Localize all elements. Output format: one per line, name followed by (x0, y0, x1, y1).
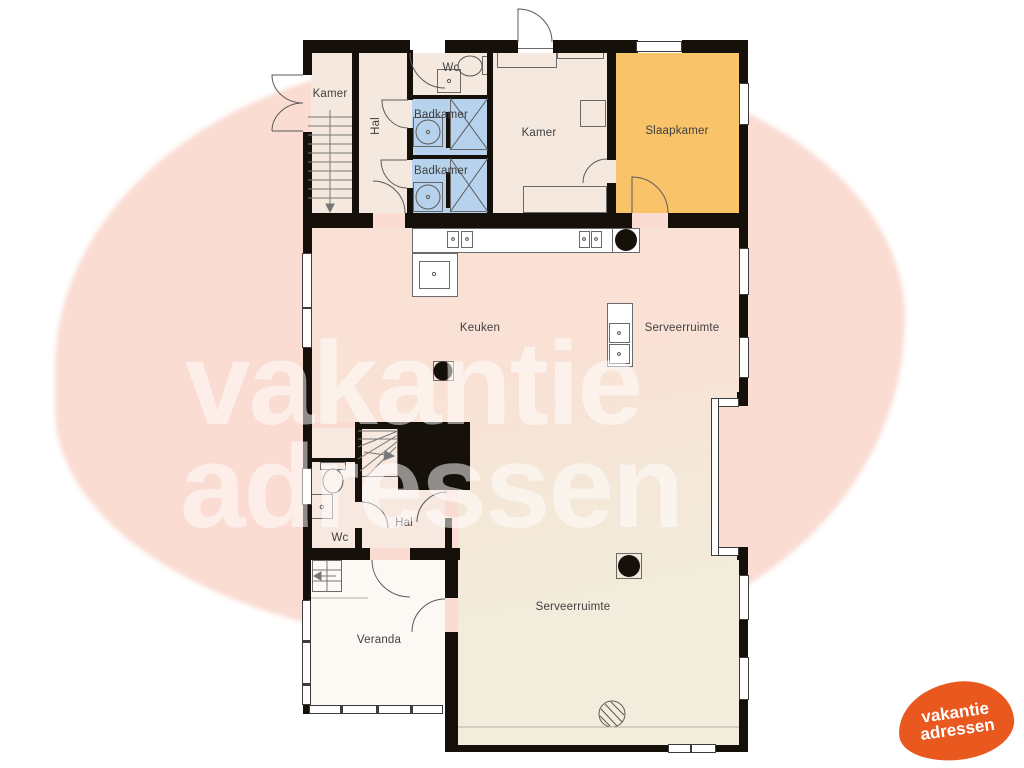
fixture-outline (616, 553, 642, 579)
window (636, 41, 682, 52)
window (711, 398, 719, 556)
fixture-outline (450, 98, 488, 150)
room-label-kamer-topleft: Kamer (313, 88, 348, 100)
room-label-kamer-top: Kamer (522, 127, 557, 139)
fixture-outline (579, 231, 590, 248)
window-mullion (376, 706, 379, 713)
wall-segment (407, 188, 413, 213)
kitchen-counter (612, 228, 640, 253)
logo-text: vakantie adressen (917, 699, 996, 744)
wall-segment (445, 632, 458, 745)
fixture-outline (320, 462, 346, 470)
wall-segment (412, 155, 487, 159)
wall-segment (303, 348, 312, 468)
room-label-serveerruimte-upper: Serveerruimte (645, 322, 720, 334)
vakantieadressen-logo: vakantie adressen (894, 676, 1018, 766)
window (302, 468, 312, 505)
window-mullion (303, 683, 311, 686)
room-label-hal-top: Hal (370, 117, 382, 135)
fixture-outline (419, 261, 450, 289)
room-label-badkamer-1: Badkamer (414, 109, 468, 121)
fixture-outline (413, 117, 443, 147)
room-label-slaapkamer: Slaapkamer (645, 125, 708, 137)
room-label-veranda: Veranda (357, 634, 401, 646)
wall-segment (739, 295, 748, 337)
wall-segment (739, 620, 748, 657)
window-mullion (303, 640, 311, 643)
fixture-outline (433, 361, 454, 381)
wall-segment (553, 40, 638, 53)
fixture-outline (447, 231, 459, 248)
window (718, 398, 739, 407)
wall-segment (412, 95, 487, 99)
wall-segment (355, 429, 362, 502)
fixture-outline (312, 560, 342, 592)
wall-segment (407, 50, 413, 100)
room-label-hal-lower: Hal (395, 517, 413, 529)
window (739, 657, 749, 700)
room-label-serveerruimte-lower: Serveerruimte (536, 601, 611, 613)
window-mullion (410, 706, 413, 713)
window-mullion (690, 744, 692, 753)
room-label-badkamer-2: Badkamer (414, 165, 468, 177)
window (302, 253, 312, 308)
fixture-outline (609, 344, 630, 364)
wall-segment (355, 422, 400, 429)
wall-segment (303, 132, 312, 218)
wall-segment (352, 50, 359, 213)
wall-segment (445, 555, 458, 598)
window (739, 248, 749, 295)
wall-segment (311, 458, 355, 462)
room-label-keuken: Keuken (460, 322, 500, 334)
wall-segment (398, 422, 470, 490)
wall-segment (607, 183, 616, 213)
fixture-outline (523, 186, 607, 213)
wall-segment (487, 50, 493, 213)
wall-segment (303, 40, 312, 75)
wall-segment (303, 228, 312, 253)
window (739, 83, 749, 125)
wall-segment (303, 213, 373, 228)
fixture-outline (461, 231, 473, 248)
window (739, 337, 749, 378)
room-label-wc-lower: Wc (331, 532, 348, 544)
fixture-outline (609, 323, 630, 343)
floorplan-page: Kamer Hal Wc Badkamer Badkamer Kamer Sla… (0, 0, 1024, 768)
fixture-outline (580, 100, 606, 127)
wall-segment (446, 172, 450, 208)
window (739, 575, 749, 620)
window-mullion (340, 706, 343, 713)
window (668, 744, 716, 753)
fixture-outline (358, 422, 398, 477)
wall-segment (607, 50, 616, 160)
fixture-outline (413, 182, 443, 212)
wall-segment (739, 125, 748, 218)
wall-segment (445, 745, 668, 752)
wall-segment (303, 548, 370, 560)
window (302, 308, 312, 348)
wall-segment (739, 556, 748, 575)
wall-segment (445, 40, 518, 53)
wall-segment (716, 745, 748, 752)
window (302, 600, 311, 705)
wall-segment (739, 228, 748, 248)
wall-segment (668, 213, 748, 228)
wall-segment (303, 555, 311, 600)
room-label-wc-top: Wc (442, 62, 459, 74)
fixture-outline (591, 231, 602, 248)
wall-segment (405, 213, 632, 228)
wall-segment (739, 40, 748, 83)
window (718, 547, 739, 556)
